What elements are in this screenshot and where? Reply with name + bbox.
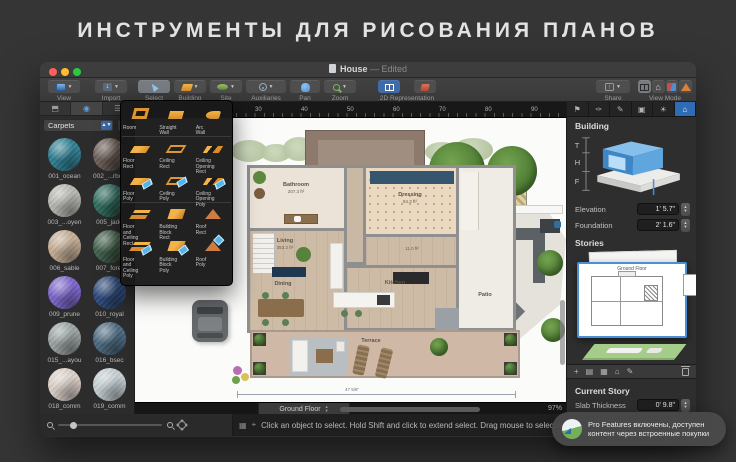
room-tool-icon	[131, 108, 149, 119]
slab-thickness-input[interactable]: 0' 9.8"	[637, 399, 679, 411]
toast-line2: контент через встроенные покупки	[588, 429, 709, 439]
promo-banner: ИНСТРУМЕНТЫ ДЛЯ РИСОВАНИЯ ПЛАНОВ	[0, 0, 736, 62]
room-label-dressing: Dressing84.3 ft²	[377, 192, 443, 205]
category-dropdown[interactable]: Carpets▲▼	[43, 119, 114, 132]
material-thumbnail	[93, 322, 126, 355]
dimension-line	[237, 394, 515, 395]
edit-icon[interactable]: ✎	[627, 367, 634, 376]
terrain-icon	[217, 84, 228, 90]
materials-icon: ◉	[83, 104, 90, 113]
furniture-icon: ⬒	[51, 104, 59, 113]
stories-section-title: Stories	[575, 238, 604, 248]
car-top-view	[192, 300, 228, 342]
select-tool-button[interactable]	[138, 80, 170, 93]
zoom-button[interactable]: ▼	[324, 80, 356, 93]
svg-text:F: F	[575, 177, 580, 186]
outdoor-rug	[290, 337, 348, 375]
inspector-panel: ⚑ ✑ ✎ ▣ ☀ ⌂ Building T H F	[566, 102, 696, 414]
building-tools-button[interactable]: ▼	[174, 80, 206, 93]
svg-text:H: H	[575, 158, 580, 167]
import-icon: ↓	[103, 83, 112, 91]
house-icon: ⌂	[655, 83, 660, 92]
planter	[504, 362, 517, 375]
building-section-title: Building	[575, 121, 609, 131]
ceiling-rect-icon	[166, 145, 187, 153]
auxiliaries-button[interactable]: ▼	[246, 80, 286, 93]
room-label-bathroom: Bathroom207.3 ft²	[263, 182, 329, 195]
tool-roof-rect[interactable]: Roof Rect	[195, 203, 231, 236]
coffee-table	[316, 349, 333, 363]
brush-tab[interactable]: ✑	[589, 102, 611, 116]
material-thumbnail	[48, 230, 81, 263]
story-toolbar: + ▤ ▦ ⌂ ✎	[567, 364, 696, 379]
flower-bed	[233, 366, 242, 375]
compass-icon	[259, 83, 267, 91]
palm-plant	[537, 250, 563, 276]
floor-rect-icon	[130, 146, 150, 153]
potted-plant	[430, 338, 448, 356]
material-thumbnail	[48, 138, 81, 171]
banner-title: ИНСТРУМЕНТЫ ДЛЯ РИСОВАНИЯ ПЛАНОВ	[77, 19, 658, 43]
canvas-bottom-strip: Ground Floor ▲▼ 97%	[135, 402, 566, 414]
split-view-icon	[667, 83, 676, 91]
dining-table	[258, 299, 304, 317]
cursor-icon	[149, 82, 159, 92]
vanity	[284, 214, 318, 224]
tool-floor-rect[interactable]: Floor Rect	[122, 137, 158, 170]
status-message: Click an object to select. Hold Shift an…	[261, 421, 588, 430]
thumbnail-size-slider[interactable]	[58, 424, 162, 426]
material-item[interactable]: 001_ocean	[42, 138, 87, 180]
pro-features-toast: Pro Features включены, доступен контент …	[552, 412, 726, 446]
sink	[294, 216, 301, 222]
material-item[interactable]: 016_bsec	[87, 322, 132, 364]
zoom-in-icon[interactable]	[167, 422, 173, 428]
roof-view-icon	[681, 83, 691, 91]
material-thumbnail	[48, 184, 81, 217]
stove	[377, 295, 390, 305]
titlebar: House — Edited	[40, 62, 696, 78]
brush-icon: ✑	[595, 105, 602, 114]
arc-wall-icon	[205, 111, 221, 119]
pan-button[interactable]	[290, 80, 320, 93]
cooler	[554, 221, 561, 228]
site-tools-button[interactable]: ▼	[210, 80, 242, 93]
view-mode-split-button[interactable]	[666, 80, 679, 93]
elevation-input[interactable]: 1' 5.7"	[637, 203, 679, 215]
view-mode-plan-button[interactable]	[638, 80, 651, 93]
room-label-patio: Patio	[457, 292, 513, 299]
view-mode-elevation-button[interactable]	[679, 80, 692, 93]
gear-icon[interactable]	[178, 421, 186, 429]
view-icon	[56, 83, 66, 91]
material-thumbnail	[48, 276, 81, 309]
planter	[504, 333, 517, 346]
material-item[interactable]: 009_prune	[42, 276, 87, 318]
vertical-scrollbar[interactable]	[560, 300, 565, 365]
building-icon: ⌂	[682, 105, 687, 114]
building-block-rect-icon	[167, 209, 185, 219]
tool-ceiling-opening-poly[interactable]: Ceiling Opening Poly	[195, 169, 231, 202]
3d-view-icon	[420, 84, 429, 91]
daylight-tab[interactable]: ☀	[653, 102, 675, 116]
library-zoom-bar	[40, 414, 233, 436]
material-thumbnail	[48, 322, 81, 355]
floor-and-ceiling-poly-icon	[129, 242, 151, 251]
2d-mode-button[interactable]	[378, 80, 400, 93]
flag-icon: ⚑	[574, 105, 581, 114]
room-bathroom	[247, 165, 347, 231]
import-button[interactable]: ↓▼	[95, 80, 127, 93]
building-tools-popup: Room Straight Wall Arc Wall Floor Rect C…	[120, 100, 233, 286]
zoom-out-icon[interactable]	[47, 422, 53, 428]
lounger	[352, 344, 370, 376]
flag-tab[interactable]: ⚑	[567, 102, 589, 116]
trash-icon[interactable]	[682, 368, 689, 376]
home-icon[interactable]: ⌂	[615, 367, 620, 376]
view-button[interactable]: ▼	[48, 80, 80, 93]
window-title: House — Edited	[40, 64, 696, 74]
roof-rect-icon	[205, 209, 221, 219]
material-thumbnail	[48, 368, 81, 401]
material-item[interactable]: 015_...ayou	[42, 322, 87, 364]
flower-bed	[232, 376, 240, 384]
story-card-plan	[591, 276, 663, 326]
entry-hall	[456, 165, 516, 331]
ceiling-poly-icon	[166, 177, 187, 185]
ceiling-opening-poly-icon	[203, 178, 223, 185]
foundation-stepper[interactable]: ▲▼	[681, 219, 690, 232]
tv	[272, 267, 306, 277]
planter	[253, 333, 266, 346]
tool-floor-and-ceiling-rect[interactable]: Floor and Ceiling Rect	[122, 203, 158, 236]
floor-and-ceiling-rect-icon	[129, 210, 151, 219]
svg-text:T: T	[575, 141, 580, 150]
material-item[interactable]: 003_...oyen	[42, 184, 87, 226]
inspector-tabs: ⚑ ✑ ✎ ▣ ☀ ⌂	[567, 102, 696, 117]
floor-plan-icon	[385, 84, 394, 91]
document-icon	[329, 64, 336, 73]
material-thumbnail	[93, 368, 126, 401]
room-label-hall: 11.0 ft²	[379, 246, 445, 252]
story-card-selected[interactable]: Ground Floor	[577, 262, 687, 338]
floor-poly-icon	[130, 178, 150, 185]
share-icon: ↑	[605, 83, 614, 91]
daylight-icon: ☀	[660, 105, 667, 114]
ceiling-opening-rect-icon	[203, 146, 223, 153]
tool-ceiling-rect[interactable]: Ceiling Rect	[158, 137, 194, 170]
sink-counter	[435, 308, 459, 330]
closet	[461, 172, 479, 230]
furniture-tab[interactable]: ⬒	[40, 102, 71, 115]
slider-knob[interactable]	[70, 422, 77, 429]
outdoor-sofa	[292, 340, 308, 372]
chevron-down-icon: ▲▼	[101, 121, 112, 130]
grid-icon[interactable]: ▦	[600, 367, 608, 376]
toast-line1: Pro Features включены, доступен	[588, 420, 709, 430]
materials-tab[interactable]: ◉	[71, 102, 102, 115]
tool-ceiling-opening-rect[interactable]: Ceiling Opening Rect	[195, 137, 231, 170]
building-block-poly-icon	[167, 241, 185, 251]
room-label-living: Living353.2 ft²	[255, 238, 315, 251]
wall-icon	[180, 84, 192, 91]
magnifier-icon	[333, 84, 340, 91]
slab-thickness-stepper[interactable]: ▲▼	[681, 399, 690, 412]
app-icon	[562, 419, 582, 439]
tool-ceiling-poly[interactable]: Ceiling Poly	[158, 169, 194, 202]
3d-mode-button[interactable]	[414, 80, 436, 93]
screenshot-root: ИНСТРУМЕНТЫ ДЛЯ РИСОВАНИЯ ПЛАНОВ House —…	[0, 0, 736, 462]
zoom-level: 97%	[548, 405, 562, 412]
tool-straight-wall[interactable]: Straight Wall	[158, 103, 194, 136]
building-tab[interactable]: ⌂	[675, 102, 697, 116]
tool-floor-and-ceiling-poly[interactable]: Floor and Ceiling Poly	[122, 235, 158, 268]
share-button[interactable]: ↑▼	[596, 80, 630, 93]
story-stepper[interactable]: ▲▼	[325, 405, 329, 413]
tool-building-block-poly[interactable]: Building Block Poly	[158, 235, 194, 268]
material-item[interactable]: 018_comm	[42, 368, 87, 410]
sofa	[330, 243, 343, 289]
current-story-title: Current Story	[575, 386, 630, 396]
hand-icon	[301, 83, 310, 92]
tool-arc-wall[interactable]: Arc Wall	[195, 103, 231, 136]
view-mode-3d-button[interactable]: ⌂	[652, 80, 665, 93]
pointer-mode-icon[interactable]: ⌖	[252, 420, 257, 430]
room-kitchen	[344, 265, 459, 331]
tool-room[interactable]: Room	[122, 103, 158, 136]
grid-toggle-icon[interactable]: ▦	[239, 421, 247, 430]
add-story-icon[interactable]: +	[574, 367, 579, 376]
tool-building-block-rect[interactable]: Building Block Rect	[158, 203, 194, 236]
room-label-kitchen: Kitchen	[367, 280, 423, 287]
tool-floor-poly[interactable]: Floor Poly	[122, 169, 158, 202]
camera-icon: ▣	[638, 105, 646, 114]
pencil-icon: ✎	[617, 105, 624, 114]
main-toolbar: ▼ View ↓▼ Import Select ▼ Building ▼ Sit…	[40, 78, 696, 102]
material-item[interactable]: 006_sable	[42, 230, 87, 272]
building-diagram: T H F	[571, 132, 693, 198]
elevation-stepper[interactable]: ▲▼	[681, 203, 690, 216]
tool-roof-poly[interactable]: Roof Poly	[195, 235, 231, 268]
room-label-dining: Dining	[253, 281, 313, 288]
camera-tab[interactable]: ▣	[632, 102, 654, 116]
lounger	[375, 347, 394, 379]
room-label-terrace: Terrace	[343, 338, 399, 345]
roof-poly-icon	[205, 241, 221, 251]
plan-view-icon	[640, 84, 649, 91]
material-item[interactable]: 019_comm	[87, 368, 132, 410]
flower-bed	[241, 373, 249, 381]
pencil-tab[interactable]: ✎	[610, 102, 632, 116]
duplicate-story-icon[interactable]: ▤	[586, 367, 594, 376]
foundation-input[interactable]: 2' 1.6"	[637, 219, 679, 231]
dimension-label: 47 5/8"	[345, 387, 359, 392]
planter	[253, 362, 266, 375]
terrain-base	[584, 344, 687, 358]
horizontal-scrollbar[interactable]	[340, 407, 480, 412]
straight-wall-icon	[168, 111, 184, 119]
wardrobe	[370, 171, 454, 184]
